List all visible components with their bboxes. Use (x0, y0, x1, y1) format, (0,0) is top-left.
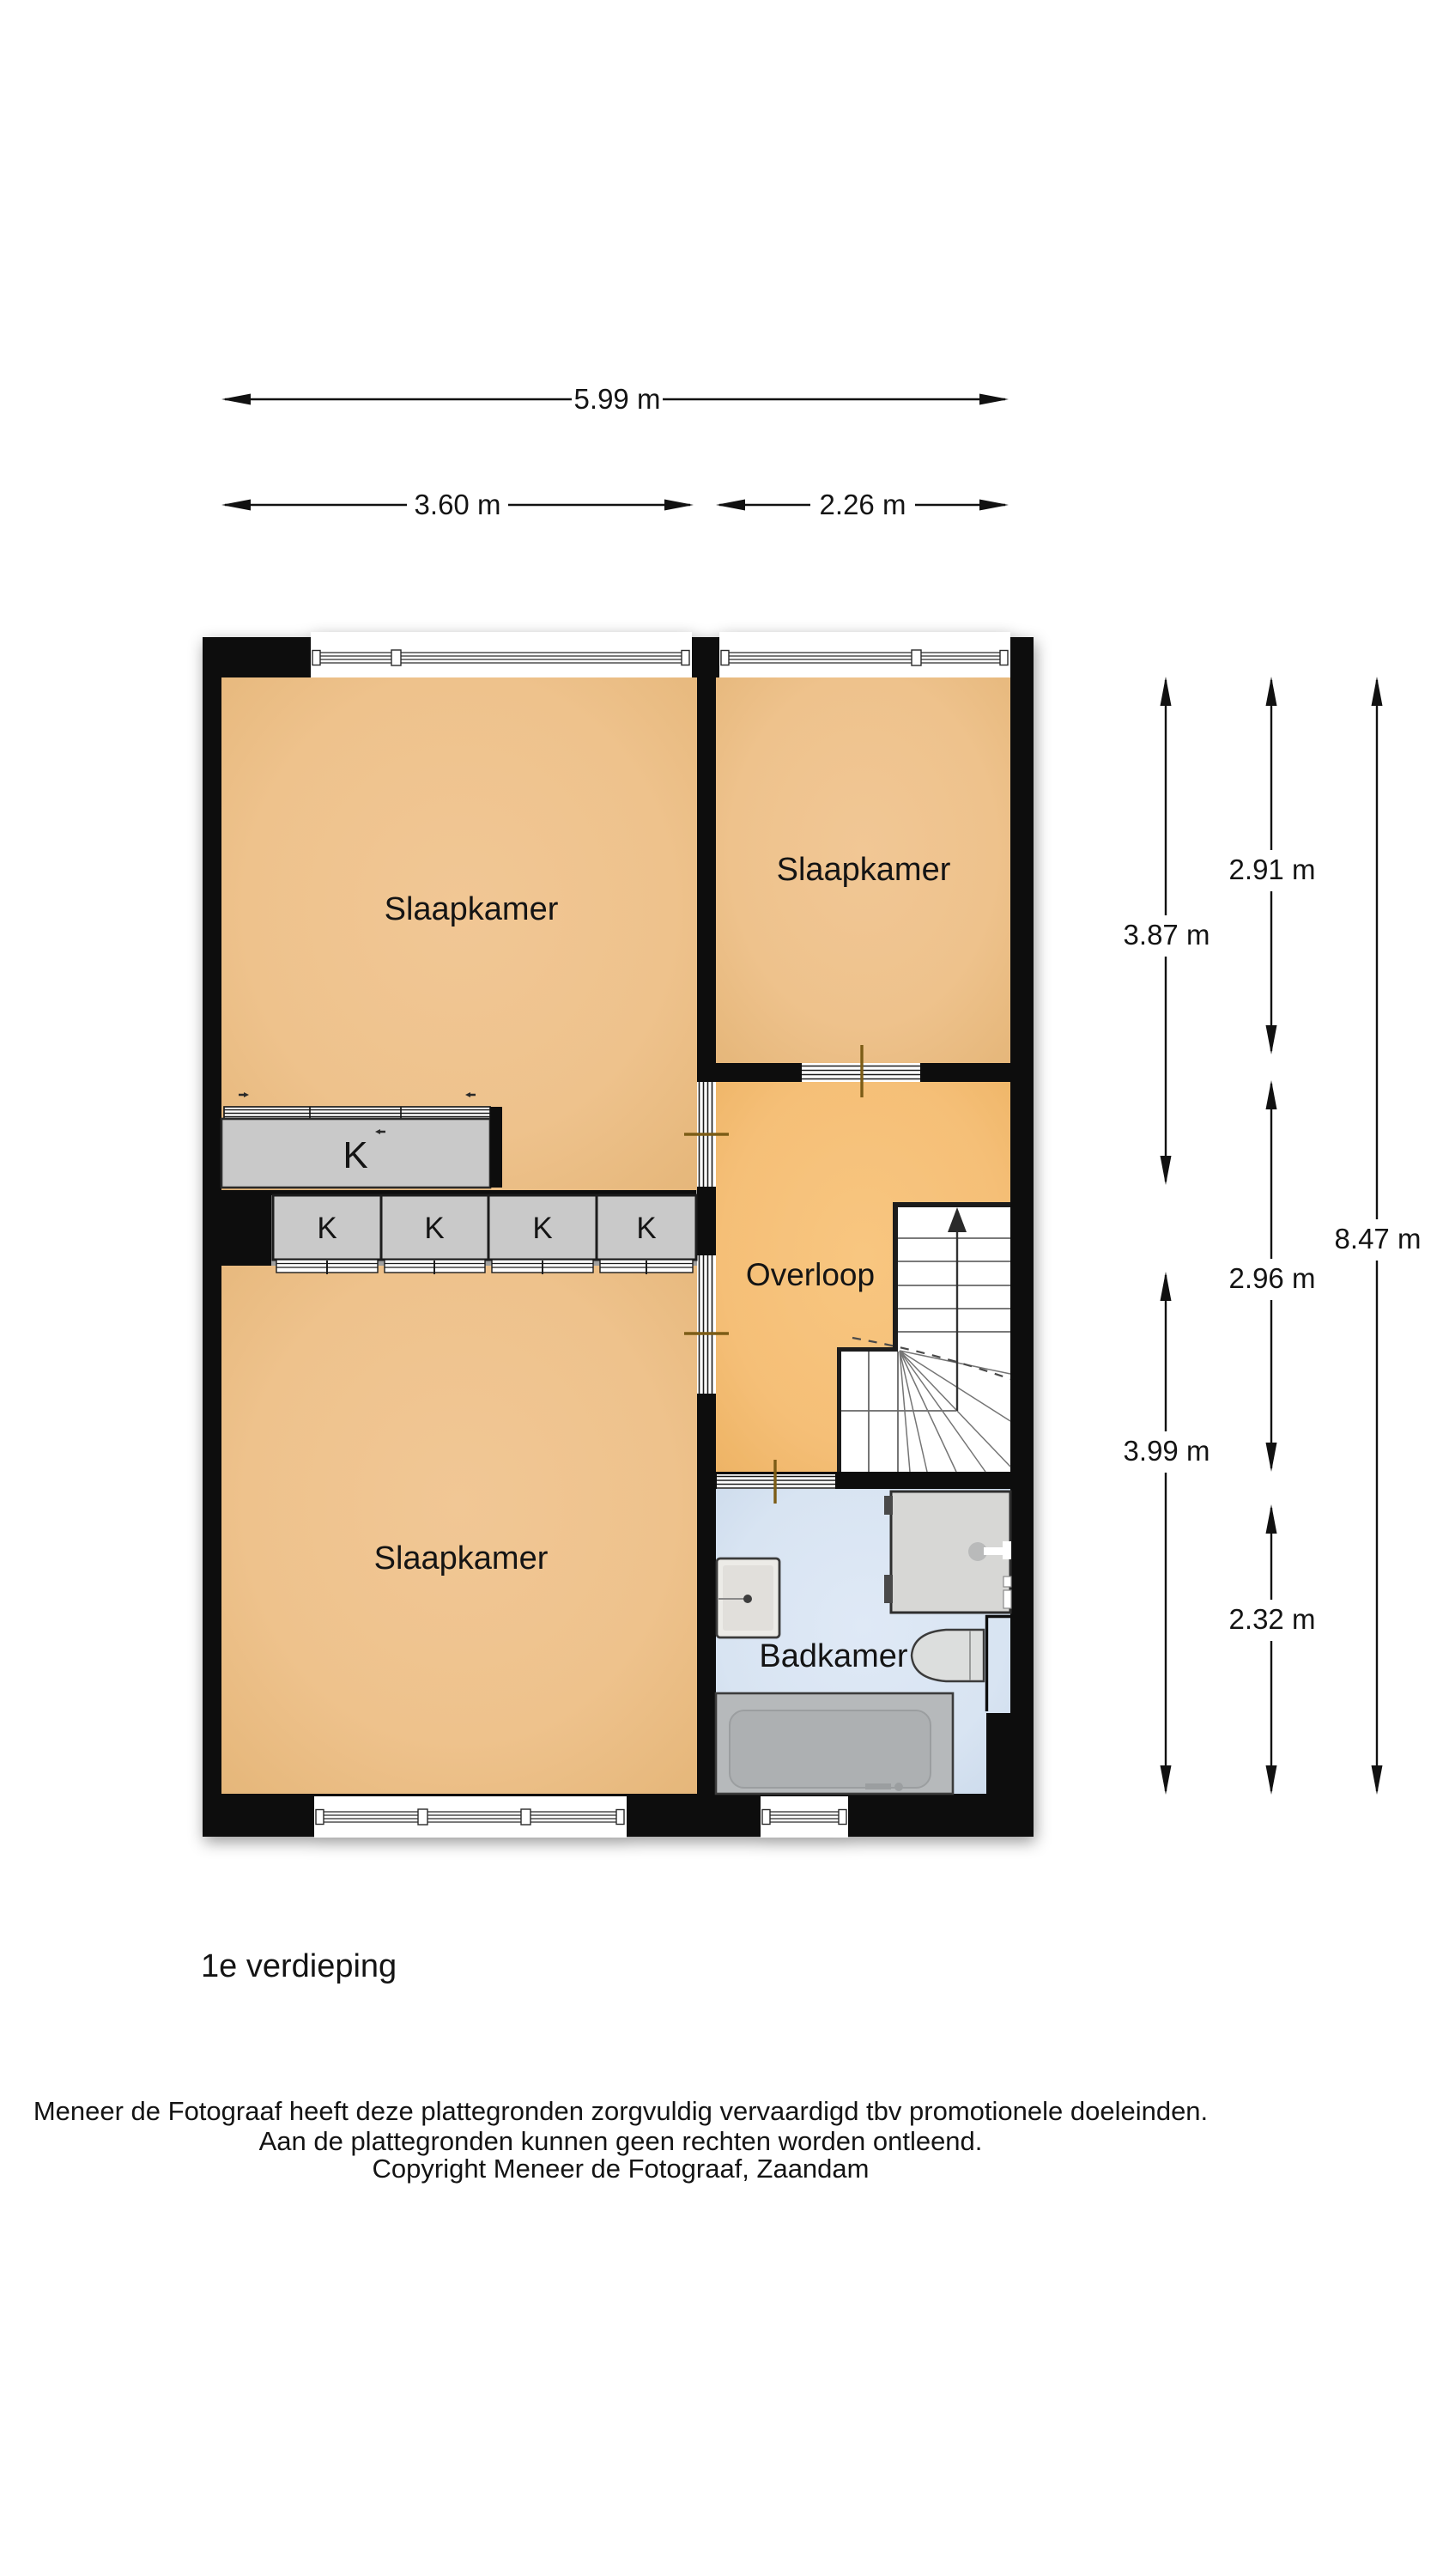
svg-text:2.26 m: 2.26 m (820, 489, 906, 520)
svg-text:3.60 m: 3.60 m (415, 489, 501, 520)
svg-text:Slaapkamer: Slaapkamer (777, 852, 951, 888)
svg-text:1e verdieping: 1e verdieping (201, 1948, 397, 1984)
svg-text:K: K (532, 1212, 552, 1245)
svg-text:Meneer de Fotograaf heeft deze: Meneer de Fotograaf heeft deze plattegro… (33, 2096, 1208, 2126)
svg-text:2.91 m: 2.91 m (1229, 854, 1316, 885)
svg-text:K: K (636, 1212, 656, 1245)
svg-text:K: K (424, 1212, 444, 1245)
svg-text:Badkamer: Badkamer (759, 1638, 908, 1674)
svg-text:Copyright Meneer de Fotograaf,: Copyright Meneer de Fotograaf, Zaandam (373, 2154, 870, 2184)
svg-text:Slaapkamer: Slaapkamer (374, 1540, 549, 1577)
svg-text:Overloop: Overloop (746, 1257, 875, 1292)
svg-text:3.99 m: 3.99 m (1124, 1435, 1210, 1467)
svg-text:K: K (317, 1212, 336, 1245)
svg-text:Aan de plattegronden kunnen ge: Aan de plattegronden kunnen geen rechten… (259, 2126, 983, 2156)
svg-text:8.47 m: 8.47 m (1335, 1223, 1422, 1255)
svg-text:2.96 m: 2.96 m (1229, 1262, 1316, 1294)
svg-text:K: K (343, 1134, 367, 1176)
svg-text:Slaapkamer: Slaapkamer (385, 891, 559, 927)
svg-text:5.99 m: 5.99 m (574, 383, 661, 415)
svg-text:3.87 m: 3.87 m (1124, 919, 1210, 951)
svg-text:2.32 m: 2.32 m (1229, 1603, 1316, 1635)
